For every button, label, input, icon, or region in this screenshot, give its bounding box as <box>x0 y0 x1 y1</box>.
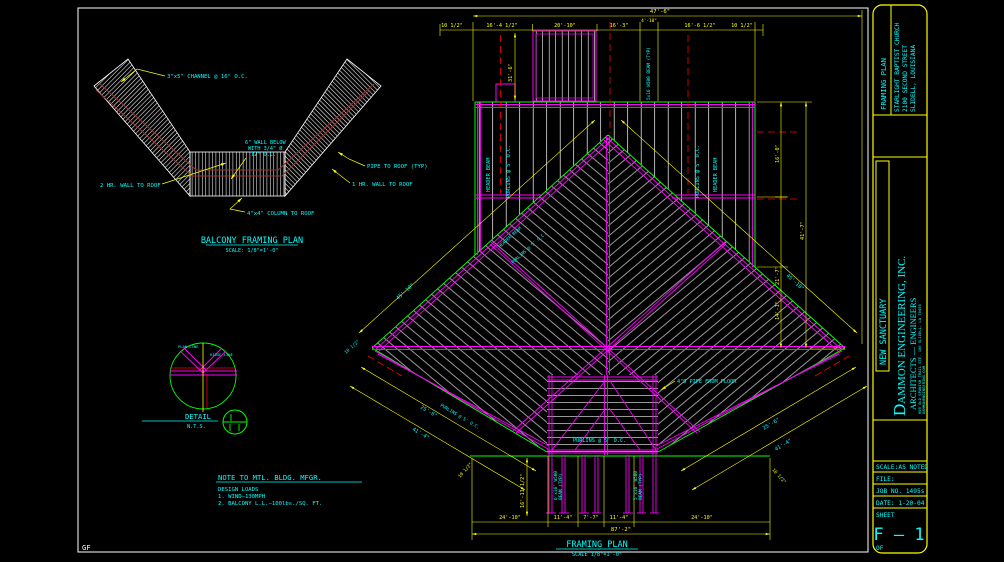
label-purlins-bay: PURLINS @ 5' O.C. <box>573 438 626 444</box>
label-pipe: PIPE TO ROOF (TYP) <box>367 164 428 170</box>
tb-date: DATE: 1-20-04 <box>876 500 925 507</box>
label-channel: 3"x5" CHANNEL @ 16" O.C. <box>167 74 248 80</box>
detail-callout: PLAN LINE RIDGE LINE DETAIL N.T.S. <box>142 343 247 434</box>
label-wall-2hr: 2 HR. WALL TO ROOF <box>100 183 161 189</box>
dim-diag-upper-right: 45'-10" <box>785 273 805 292</box>
tb-sheet-number: F — 1 <box>873 525 924 545</box>
label-header-beam-right: HEADER BEAM <box>713 158 719 192</box>
balcony-center-band <box>190 152 285 196</box>
notes-title: NOTE TO MTL. BLDG. MFGR. <box>218 473 322 482</box>
tb-project-line3: SLIDELL, LOUISIANA <box>910 45 917 112</box>
label-column: 4"x4" COLUMN TO ROOF <box>247 211 315 217</box>
framing-plan-scale: SCALE 1/8"=1'-0" <box>572 552 622 558</box>
balcony-plan-title: BALCONY FRAMING PLAN <box>201 236 303 246</box>
tb-project-line2: 2100 SECOND STREET <box>902 45 909 112</box>
dim-top-7: 10 1/2" <box>731 23 753 29</box>
small-bump <box>496 84 515 102</box>
tb-sheet-label: SHEET <box>876 512 895 519</box>
tb-project-name: NEW SANCTUARY <box>879 298 889 365</box>
dim-bottom-1: 24'-10" <box>499 515 521 521</box>
tb-file: FILE: <box>876 476 895 483</box>
detail-plan-line-label: PLAN LINE <box>178 344 199 349</box>
dim-top-1: 10 1/2" <box>441 23 463 29</box>
tb-firm-addr2: DAMMONENGINEERING.COM <box>921 365 926 414</box>
dim-top-6: 16'-6 1/2" <box>684 23 715 29</box>
balcony-plan-scale: SCALE: 1/8"=1'-0" <box>225 248 278 254</box>
dim-offset-br: 10 1/2" <box>771 467 788 485</box>
dim-right-1: 16'-0" <box>775 144 781 163</box>
framing-plan-title: FRAMING PLAN <box>566 540 627 550</box>
detail-ridge-label: RIDGE LINE <box>210 352 234 357</box>
tb-project-line1: STARLIGHT BAPTIST CHURCH <box>894 22 901 112</box>
dim-diag-lower-left-inner: 25'-6" <box>419 405 438 420</box>
dim-bottom-overall: 87'-2" <box>611 527 631 533</box>
dim-bottom-4: 11'-4" <box>610 515 629 521</box>
dim-offset-left-tip: 10 1/2" <box>343 339 361 356</box>
dim-top-5: 4'-10" <box>641 18 657 24</box>
dim-bump-height: 31'-6" <box>508 63 514 82</box>
dim-top-2: 16'-4 1/2" <box>486 23 517 29</box>
main-framing-plan: HEADER BEAM PURLINS @ 5' O.C. PURLINS @ … <box>343 9 867 558</box>
label-wall-below-2: WITH 3/4" Ø <box>248 145 283 152</box>
dim-diag-lower-right-inner: 25'-6" <box>762 417 781 432</box>
dim-diag-upper-left: 45'-10" <box>395 282 415 301</box>
label-pipe-from-floor: 4"Ø PIPE FROM FLOOR <box>677 378 737 385</box>
title-block: FRAMING PLAN STARLIGHT BAPTIST CHURCH 21… <box>873 5 928 553</box>
dim-diag-lower-right-outer: 41'-4" <box>774 438 793 453</box>
cad-sheet: GF 3"x5" CHANNEL @ 16" O.C. 6" WALL BELO… <box>0 0 1004 562</box>
label-purlins-left: PURLINS @ 5' O.C. <box>506 145 512 198</box>
dim-top-4: 16'-3" <box>610 23 629 29</box>
leader-pipe <box>338 152 365 166</box>
cad-drawing-canvas: GF 3"x5" CHANNEL @ 16" O.C. 6" WALL BELO… <box>0 0 1004 562</box>
detail-title: DETAIL <box>185 412 211 421</box>
dim-diag-lower-left-outer: 41'-4" <box>411 427 430 442</box>
notes-line-2: 1. WIND—130MPH <box>218 494 265 500</box>
dim-offset-bl: 10 1/2" <box>457 462 474 480</box>
label-header-beam-left: HEADER BEAM <box>486 158 492 192</box>
label-beam-typ: 5x16 W500 BEAM (TYP) <box>646 47 652 100</box>
tb-of: OF <box>876 545 884 552</box>
corner-label: GF <box>82 543 91 552</box>
label-wall-1hr: 1 HR. WALL TO ROOF <box>352 182 413 188</box>
top-bump <box>533 31 596 101</box>
dim-bottom-2: 11'-4" <box>554 515 573 521</box>
notes-line-1: DESIGN LOADS <box>218 487 258 493</box>
tb-scale: SCALE:AS NOTED <box>876 464 928 471</box>
notes-line-3: 2. BALCONY L.L.—100lbs./SQ. FT. <box>218 501 322 507</box>
dim-right-2: 21'-7" <box>775 266 781 285</box>
tb-plan-type: FRAMING PLAN <box>879 58 888 110</box>
leader-column <box>230 198 245 212</box>
label-purlins-right: PURLINS @ 5' O.C. <box>695 145 701 198</box>
label-beam-left-b: BEAM (TYP) <box>558 474 564 500</box>
label-beam-right-b: BEAM (TYP) <box>638 474 644 500</box>
leader-wall-1hr <box>332 169 350 183</box>
dim-bottom-5: 24'-10" <box>691 515 713 521</box>
tb-firm-name: DAMMON ENGINEERING, INC. <box>890 256 909 416</box>
tb-job: JOB NO. 1495s <box>876 488 925 495</box>
detail-scale: N.T.S. <box>187 424 206 430</box>
detail-diag-left <box>180 351 203 373</box>
label-wall-below-3: 12" O.C. <box>251 152 276 158</box>
dim-top-3: 20'-10" <box>554 23 576 29</box>
dim-right-overall: 41'-7" <box>800 221 806 240</box>
dim-left-vert: 16'-11 1/2" <box>520 474 526 508</box>
notes-block: NOTE TO MTL. BLDG. MFGR. DESIGN LOADS 1.… <box>216 473 362 507</box>
dim-bottom-3: 7'-7" <box>583 515 599 521</box>
dim-right-3: 14'-1" <box>775 301 781 320</box>
dim-top-overall: 47'-6" <box>650 9 670 15</box>
balcony-right-arm <box>285 59 381 196</box>
balcony-framing-plan: 3"x5" CHANNEL @ 16" O.C. 6" WALL BELOW W… <box>94 59 428 254</box>
